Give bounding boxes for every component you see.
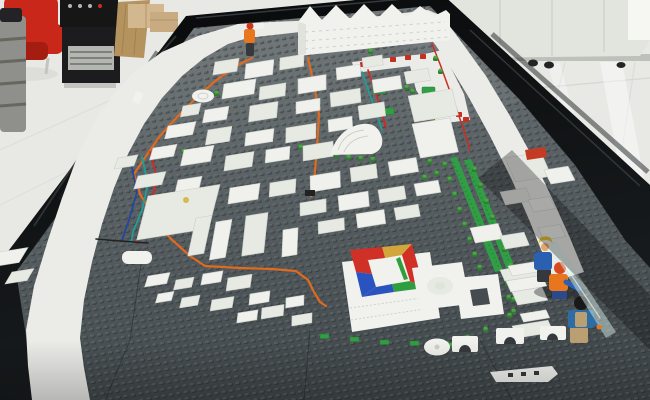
yellow-piece [183,197,189,203]
micro-tree-top [508,313,512,316]
amp-knob-red [98,4,102,8]
micro-tree-top [423,175,427,178]
micro-tree-top [371,157,375,160]
hall-side-shade [298,22,306,56]
micro-tree-top [507,295,511,298]
red-brick [463,117,469,122]
gray-stack-object [0,16,26,132]
micro-tree-top [478,265,482,268]
worker-helmet [247,23,254,30]
worker-legs [246,43,254,56]
green-tile [320,334,329,339]
micro-tree-top [479,183,483,186]
helipad [192,90,214,103]
micro-tree-top [448,177,452,180]
lego-building [242,213,268,257]
fig-torso [534,252,552,270]
micro-tree-top [491,215,495,218]
amp-knob [68,4,72,8]
micro-tree-top [299,145,303,148]
white-pod [122,251,152,264]
micro-tree-top [484,327,488,330]
cardboard-box [150,12,178,32]
lego-building [412,118,458,158]
round-tower-core [435,283,445,290]
scene-canvas [0,0,650,400]
chair-leg [46,58,48,74]
micro-tree-top [369,49,373,52]
micro-tree-top [458,207,462,210]
micro-tree-top [215,91,219,94]
red-brick [390,57,396,62]
worker-vest [244,29,255,43]
micro-tree-top [439,69,443,72]
micro-tree-top [434,56,438,59]
courtyard-hole [470,288,490,306]
micro-tree-top [411,89,415,92]
amp-knob [78,4,82,8]
bottom-vignette [0,340,650,400]
micro-tree-top [512,309,516,312]
micro-tree-top [463,222,467,225]
lego-building [282,228,298,257]
red-brick [405,55,411,60]
caster-wheel [617,62,626,68]
stack-stripe [0,104,26,106]
micro-tree-top [435,171,439,174]
stack-stripe [0,38,26,40]
micro-tree-top [347,155,351,158]
micro-tree-top [405,85,409,88]
micro-tree-top [485,199,489,202]
caster-wheel [544,62,554,69]
photo-lego-city-scene [0,0,650,400]
micro-tree-top [473,252,477,255]
amp-knob [88,4,92,8]
speaker-shelf [64,83,116,88]
micro-tree-top [468,237,472,240]
micro-tree-top [453,192,457,195]
wire-connector [305,190,315,196]
stack-stripe [0,60,26,62]
red-brick [420,54,426,59]
speaker-amp [60,0,118,27]
fig-vest [575,312,587,327]
fig-legs [537,269,551,282]
micro-tree-top [443,162,447,165]
stack-cap [0,8,22,22]
micro-tree-top [359,156,363,159]
stack-stripe [0,82,26,84]
micro-tree-top [473,167,477,170]
fig-hand [597,325,602,330]
micro-tree-top [428,159,432,162]
bright-panel [628,0,650,40]
